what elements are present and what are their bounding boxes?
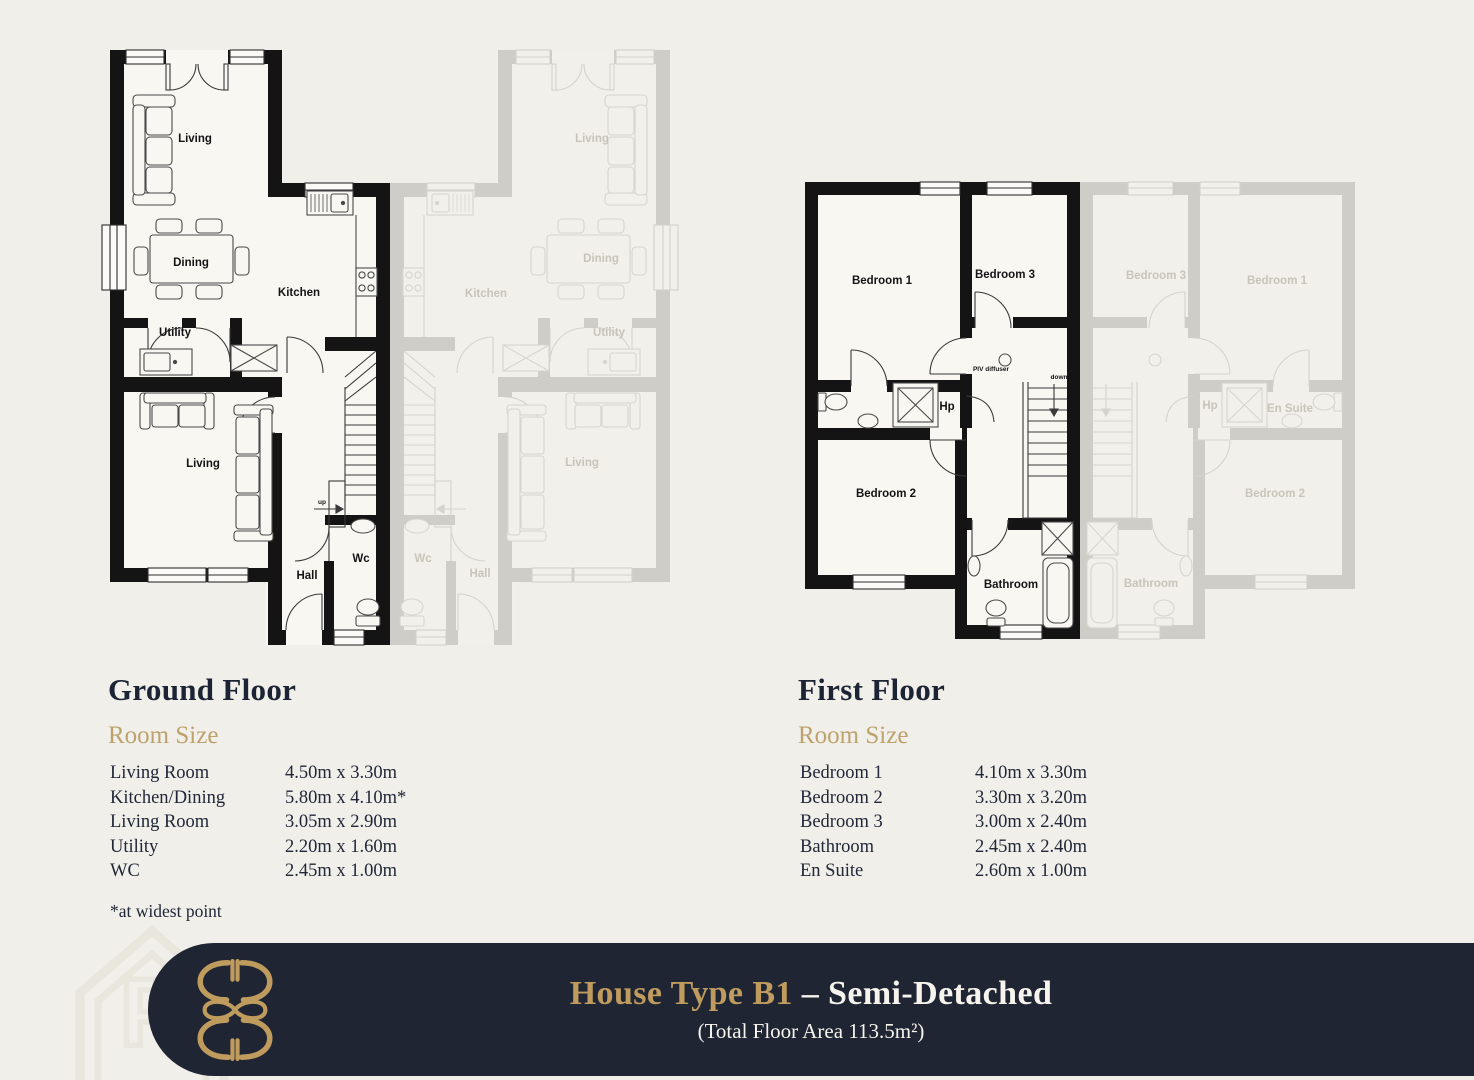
- room-name: Living Room: [110, 761, 285, 786]
- room-dimensions: 3.05m x 2.90m: [285, 810, 406, 835]
- room-name: WC: [110, 859, 285, 884]
- svg-text:Bedroom 2: Bedroom 2: [1245, 488, 1305, 500]
- wc-toilet: [356, 616, 380, 626]
- dining-chair: [156, 219, 182, 233]
- svg-text:Dining: Dining: [583, 253, 619, 265]
- room-label-living-bottom: Living: [186, 458, 220, 470]
- first-floor-plan: Bedroom 1 Bedroom 3 Bedroom 2 Bathroom H…: [790, 170, 1370, 670]
- svg-text:Bedroom 1: Bedroom 1: [1247, 275, 1308, 287]
- svg-text:Hp: Hp: [1202, 400, 1217, 412]
- room-name: Bedroom 1: [800, 761, 975, 786]
- svg-text:Kitchen: Kitchen: [465, 288, 507, 300]
- room-name: Living Room: [110, 810, 285, 835]
- room-label-kitchen: Kitchen: [278, 287, 320, 299]
- house-type-label: House Type B1: [570, 975, 793, 1012]
- ground-floor-plan: Living Dining Kitchen Utility Living Hal…: [100, 25, 700, 655]
- room-label-dining: Dining: [173, 257, 209, 269]
- ground-floor-room-table: Living Room4.50m x 3.30m Kitchen/Dining5…: [110, 761, 406, 884]
- bathroom-toilet: [986, 600, 1006, 616]
- ground-floor-mirror: [390, 50, 678, 645]
- room-label-bedroom-1: Bedroom 1: [852, 275, 913, 287]
- developer-logo-icon: [176, 956, 294, 1064]
- room-label-wc: Wc: [352, 553, 370, 565]
- house-style-label: – Semi-Detached: [802, 975, 1053, 1012]
- room-dimensions: 2.20m x 1.60m: [285, 835, 406, 860]
- first-floor-title: First Floor: [798, 672, 945, 708]
- ensuite-basin: [858, 414, 878, 428]
- room-label-hall: Hall: [296, 570, 317, 582]
- room-name: Bedroom 3: [800, 810, 975, 835]
- first-floor-room-size-heading: Room Size: [798, 722, 945, 750]
- room-dimensions: 5.80m x 4.10m*: [285, 786, 406, 811]
- sofa-living-top: [133, 105, 145, 195]
- svg-text:En Suite: En Suite: [1267, 403, 1313, 415]
- piv-diffuser-label: PIV diffuser: [973, 366, 1010, 373]
- total-floor-area: (Total Floor Area 113.5m²): [698, 1019, 925, 1044]
- bathroom-basin: [968, 556, 980, 576]
- room-label-bedroom-3: Bedroom 3: [975, 269, 1035, 281]
- svg-text:Bedroom 3: Bedroom 3: [1126, 270, 1186, 282]
- svg-text:Hall: Hall: [469, 568, 490, 580]
- room-name: En Suite: [800, 859, 975, 884]
- room-label-utility: Utility: [159, 327, 192, 339]
- first-floor-room-table: Bedroom 14.10m x 3.30m Bedroom 23.30m x …: [800, 761, 1087, 884]
- room-label-living-top: Living: [178, 133, 212, 145]
- room-name: Utility: [110, 835, 285, 860]
- room-dimensions: 4.50m x 3.30m: [285, 761, 406, 786]
- room-dimensions: 4.10m x 3.30m: [975, 761, 1087, 786]
- room-dimensions: 2.60m x 1.00m: [975, 859, 1087, 884]
- svg-text:Living: Living: [565, 457, 599, 469]
- room-name: Bedroom 2: [800, 786, 975, 811]
- svg-text:Wc: Wc: [414, 553, 432, 565]
- room-dimensions: 2.45m x 1.00m: [285, 859, 406, 884]
- room-dimensions: 2.45m x 2.40m: [975, 835, 1087, 860]
- hob: [356, 268, 377, 296]
- first-floor-heading: First Floor Room Size: [798, 672, 945, 750]
- svg-text:Bathroom: Bathroom: [1124, 578, 1178, 590]
- piv-diffuser-symbol: [999, 354, 1011, 366]
- svg-text:Living: Living: [575, 133, 609, 145]
- wc-basin: [351, 519, 375, 533]
- svg-text:Utility: Utility: [593, 327, 626, 339]
- room-label-hp: Hp: [939, 401, 954, 413]
- footer-banner: House Type B1 – Semi-Detached (Total Flo…: [148, 943, 1474, 1076]
- ground-floor-room-size-heading: Room Size: [108, 722, 296, 750]
- brochure-page: Living Dining Kitchen Utility Living Hal…: [0, 0, 1474, 1080]
- room-label-bathroom: Bathroom: [984, 579, 1038, 591]
- ground-floor-heading: Ground Floor Room Size: [108, 672, 296, 750]
- room-label-bedroom-2: Bedroom 2: [856, 488, 916, 500]
- room-dimensions: 3.00m x 2.40m: [975, 810, 1087, 835]
- footer-title: House Type B1 – Semi-Detached: [570, 975, 1053, 1013]
- stairs-up-label: up: [318, 499, 326, 506]
- room-name: Kitchen/Dining: [110, 786, 285, 811]
- room-dimensions: 3.30m x 3.20m: [975, 786, 1087, 811]
- ground-floor-geometry: [102, 50, 390, 645]
- room-name: Bathroom: [800, 835, 975, 860]
- stairs-down-label: down: [1051, 374, 1068, 381]
- ground-floor-title: Ground Floor: [108, 672, 296, 708]
